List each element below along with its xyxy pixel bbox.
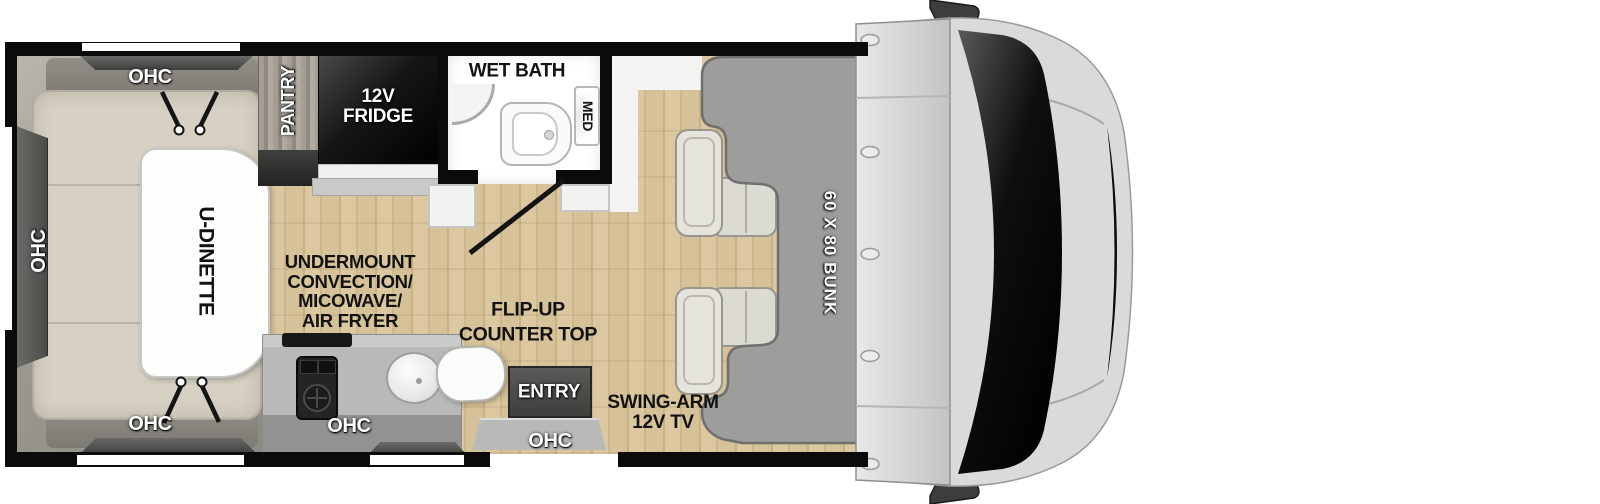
table-support-marks-bottom bbox=[164, 386, 219, 423]
label-tv-line2: 12V TV bbox=[607, 413, 718, 433]
label-ohc-entry: OHC bbox=[528, 431, 572, 451]
label-tv-line1: SWING-ARM bbox=[607, 393, 718, 413]
label-ohc-rear-side: OHC bbox=[29, 229, 49, 273]
table-support-marks-top bbox=[162, 92, 217, 127]
label-fridge-line2: FRIDGE bbox=[343, 107, 413, 127]
table-support-dots-bottom bbox=[177, 378, 207, 387]
label-undermount-appliance: UNDERMOUNT CONVECTION/ MICOWAVE/ AIR FRY… bbox=[285, 252, 416, 330]
label-swing-arm-tv: SWING-ARM 12V TV bbox=[607, 393, 718, 433]
floorplan-canvas: OHC OHC OHC U-DINETTE PANTRY 12V FRIDGE … bbox=[0, 0, 1600, 504]
label-undermount-line2: CONVECTION/ bbox=[285, 271, 416, 291]
bath-door-swing-line bbox=[470, 180, 564, 253]
label-undermount-line3: MICOWAVE/ bbox=[285, 291, 416, 311]
label-wet-bath: WET BATH bbox=[469, 62, 565, 81]
label-med: MED bbox=[581, 101, 595, 131]
table-support-dots-top bbox=[175, 126, 205, 135]
label-ohc-kitchen: OHC bbox=[327, 416, 371, 436]
label-flip-up-line2: COUNTER TOP bbox=[459, 324, 597, 345]
label-fridge-line1: 12V bbox=[343, 87, 413, 107]
label-entry: ENTRY bbox=[518, 383, 580, 402]
label-ohc-rear-bottom: OHC bbox=[128, 414, 172, 434]
marks-overlay bbox=[0, 0, 1600, 504]
label-flip-up-counter: FLIP-UP COUNTER TOP bbox=[459, 299, 597, 344]
label-undermount-line1: UNDERMOUNT bbox=[285, 252, 416, 272]
label-fridge: 12V FRIDGE bbox=[343, 87, 413, 127]
label-ohc-rear-top: OHC bbox=[128, 67, 172, 87]
label-u-dinette: U-DINETTE bbox=[196, 206, 217, 315]
label-bunk: 60 X 80 BUNK bbox=[822, 191, 839, 315]
label-pantry: PANTRY bbox=[279, 66, 297, 136]
label-undermount-line4: AIR FRYER bbox=[285, 311, 416, 331]
label-flip-up-line1: FLIP-UP bbox=[459, 299, 597, 320]
